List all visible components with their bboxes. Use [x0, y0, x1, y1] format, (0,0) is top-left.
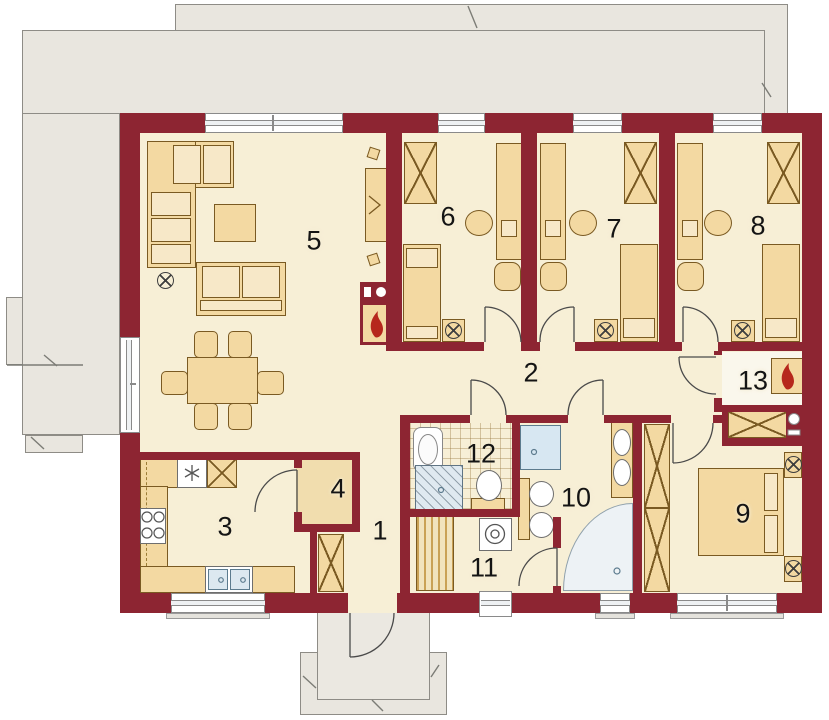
- wall: [294, 452, 302, 468]
- sofa-cushion: [203, 145, 231, 184]
- sofa-cushion: [151, 192, 191, 216]
- wall: [352, 452, 360, 532]
- wall: [140, 452, 360, 460]
- wall: [622, 113, 713, 133]
- window-glass: [481, 600, 510, 606]
- dining-chair: [194, 331, 218, 358]
- shower: [415, 465, 463, 512]
- boiler: [771, 358, 803, 394]
- wardrobe: [404, 142, 437, 204]
- window-sill: [670, 613, 784, 619]
- porch-platform: [317, 610, 430, 700]
- sink-basin: [230, 569, 250, 590]
- desk: [540, 143, 566, 260]
- wardrobe: [318, 534, 344, 592]
- wall: [722, 438, 802, 446]
- bed-pillow: [764, 515, 778, 553]
- terrace-step-left: [6, 297, 23, 365]
- media-unit: [365, 168, 387, 242]
- stool: [540, 262, 567, 291]
- wall: [762, 113, 822, 133]
- washing-machine: [479, 518, 512, 551]
- sofa-cushion: [173, 145, 201, 184]
- wall: [120, 133, 140, 337]
- wall: [120, 113, 205, 133]
- wall: [386, 133, 402, 351]
- dining-chair: [161, 371, 188, 395]
- room-2-label: 2: [523, 358, 538, 389]
- wall: [659, 133, 675, 351]
- wardrobe-tall: [644, 424, 670, 508]
- shower-tray: [520, 425, 561, 470]
- room-1-label: 1: [372, 516, 387, 547]
- niche-cabinet: [728, 411, 788, 438]
- wardrobe-tall: [644, 508, 670, 592]
- room-9-label: 9: [735, 499, 750, 530]
- wall: [722, 412, 728, 438]
- window-glass: [573, 120, 622, 126]
- sofa-cushion: [202, 266, 240, 298]
- bed-pillow: [623, 318, 655, 338]
- terrace-top: [22, 30, 765, 115]
- wall: [397, 593, 481, 613]
- toilet: [476, 470, 502, 501]
- wall: [714, 405, 802, 412]
- desk-chair: [569, 210, 597, 236]
- wall: [713, 415, 722, 423]
- lamp-icon: [445, 322, 462, 339]
- wall: [718, 342, 822, 351]
- sofa-cushion: [151, 218, 191, 242]
- desk: [677, 143, 703, 260]
- wall: [120, 433, 140, 593]
- desk-drawer: [501, 220, 517, 237]
- coffee-table: [214, 204, 256, 242]
- wall: [714, 351, 722, 355]
- wall: [714, 398, 722, 405]
- lamp-icon: [734, 322, 751, 339]
- wall: [485, 113, 573, 133]
- wall: [630, 593, 677, 613]
- room-8-label: 8: [750, 211, 765, 242]
- window-glass: [171, 600, 265, 606]
- wardrobe: [767, 142, 800, 204]
- room-4-label: 4: [330, 474, 345, 505]
- vanity-sink: [613, 429, 631, 456]
- vanity-sink: [613, 459, 631, 486]
- wardrobe: [624, 142, 657, 204]
- dining-chair: [194, 403, 218, 430]
- wall: [510, 593, 600, 613]
- dining-chair: [257, 371, 284, 395]
- room-12-label: 12: [466, 439, 496, 470]
- desk-drawer: [545, 220, 561, 237]
- sofa-back: [200, 300, 282, 311]
- bed-foot: [406, 326, 438, 339]
- wall: [521, 133, 537, 351]
- window-glass: [438, 120, 485, 126]
- dining-table: [187, 357, 258, 404]
- lamp-icon: [785, 456, 802, 473]
- terrace-door-glass: [126, 340, 132, 430]
- wall: [633, 415, 642, 593]
- stove: [140, 508, 166, 544]
- dining-chair: [228, 331, 252, 358]
- window-glass: [713, 120, 762, 126]
- terrace-step-bottom: [25, 435, 83, 453]
- wall: [120, 593, 171, 613]
- lamp-icon: [597, 322, 614, 339]
- window-sill: [166, 613, 270, 619]
- fridge: [177, 458, 207, 488]
- sofa-cushion: [242, 266, 280, 298]
- wall: [553, 517, 561, 548]
- wall: [575, 342, 682, 351]
- drying-rack: [416, 515, 454, 591]
- window-glass: [677, 600, 777, 606]
- kitchen-cabinet: [207, 458, 237, 488]
- bed-pillow: [765, 318, 797, 338]
- bed-pillow: [764, 473, 778, 511]
- window-glass: [600, 600, 630, 606]
- wall: [400, 415, 410, 593]
- sofa-cushion: [151, 244, 191, 264]
- wall: [294, 512, 302, 524]
- wall: [343, 113, 438, 133]
- wall: [553, 586, 561, 593]
- wall: [521, 342, 540, 351]
- bidet: [529, 512, 554, 538]
- wall: [512, 415, 520, 517]
- room-11-label: 11: [470, 553, 498, 584]
- room-7-label: 7: [606, 214, 621, 245]
- room-10-label: 10: [561, 483, 591, 514]
- bed-pillow: [406, 248, 438, 268]
- room-6-label: 6: [440, 202, 455, 233]
- wall: [386, 342, 484, 351]
- floor-lamp-icon: [157, 272, 174, 289]
- desk-chair: [704, 210, 732, 236]
- window-glass: [205, 120, 343, 126]
- desk: [496, 143, 522, 260]
- room-3-label: 3: [217, 512, 232, 543]
- wall: [265, 593, 348, 613]
- wall: [777, 593, 822, 613]
- desk-chair: [465, 210, 493, 236]
- stool: [494, 262, 521, 291]
- stool: [677, 262, 704, 291]
- sink-basin: [208, 569, 228, 590]
- wall: [802, 133, 822, 593]
- room-13-label: 13: [738, 366, 768, 397]
- wall: [400, 509, 520, 517]
- lamp-icon: [785, 560, 802, 577]
- window-sill: [595, 613, 635, 619]
- dining-chair: [228, 403, 252, 430]
- wall: [294, 524, 360, 532]
- wall: [400, 415, 470, 423]
- room-5-label: 5: [306, 226, 321, 257]
- terrace-left: [22, 113, 120, 435]
- floor-plan: 1 2 3 4 5 6 7 8 9 10 11 12 13: [0, 0, 829, 720]
- niche-fixture-bg: [786, 408, 802, 440]
- wall: [310, 532, 317, 593]
- washbasin-bowl: [418, 434, 438, 465]
- desk-drawer: [682, 220, 698, 237]
- toilet: [529, 481, 554, 507]
